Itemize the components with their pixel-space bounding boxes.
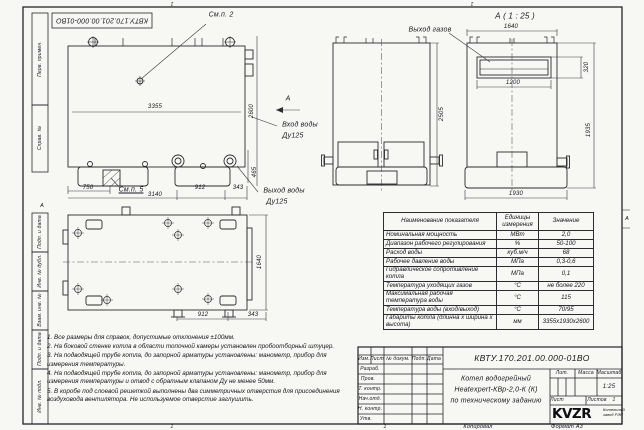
dim-2505: 2505 <box>439 107 445 121</box>
dim-912-plan: 912 <box>198 312 209 318</box>
tb-lit-label: Лит. <box>556 370 569 376</box>
table-row: Температура уходящих газов°Сне более 220 <box>384 282 594 291</box>
callout-smp5: См.п. 5 <box>119 187 144 194</box>
tb-name-line1: Котел водогрейный <box>461 376 531 383</box>
tb-row-tkontr: Т. контр. <box>358 386 381 392</box>
dim-912-side: 912 <box>195 185 206 191</box>
note-1: 1. Все размеры для справок, допустимые о… <box>47 334 351 343</box>
tb-row-nachotd: Нач.отд. <box>359 396 382 402</box>
table-row: Гидравлическое сопротивление котлаМПа0,1 <box>384 267 594 282</box>
margin-label-sprav-no: Справ. № <box>37 126 43 150</box>
table-row: Габариты котла (длинна х ширина х высота… <box>384 315 594 330</box>
margin-label-inv-dubl: Инв. № дубл. <box>37 254 43 287</box>
dim-750: 750 <box>83 185 94 191</box>
spec-header-name: Наименование показателя <box>384 213 497 231</box>
tb-row-utv: Утв. <box>360 416 372 422</box>
inlet-label-line2: Ду125 <box>282 133 303 140</box>
top-stamp-designation: КВТУ.170.201.00.000-01ВО <box>56 17 148 24</box>
front-view-dims <box>430 43 439 186</box>
table-row: Максимальная рабочая температура воды°С1… <box>384 291 594 306</box>
section-a-dims <box>449 29 596 200</box>
tb-format: Формат А3 <box>551 424 583 430</box>
dim-343-side: 343 <box>233 185 244 191</box>
section-a-title: А ( 1 : 25 ) <box>495 12 535 21</box>
table-row: Рабочее давление водыМПа0,3-0,6 <box>384 258 594 267</box>
note-2: 2. На боковой стенке котла в области топ… <box>47 343 351 352</box>
tb-col-izm: Изм. <box>358 356 369 362</box>
zone-number-bottom: 1 <box>171 424 174 430</box>
dim-320: 320 <box>584 62 590 73</box>
plan-view <box>63 207 253 317</box>
dim-1930: 1930 <box>509 191 523 197</box>
table-row: Температура воды (вход/выход)°С70/95 <box>384 306 594 315</box>
spec-header-row: Наименование показателя Единицы измерени… <box>384 213 594 231</box>
tb-col-data: Дата <box>427 356 441 362</box>
dim-343-plan: 343 <box>248 312 259 318</box>
dim-465: 465 <box>252 167 258 178</box>
outlet-label-line1: Выход воды <box>263 188 304 195</box>
margin-label-vzam-inv: Взам. инв. № <box>37 293 43 326</box>
tb-massa-label: Масса <box>578 370 594 376</box>
note-3: 3. На подводящей трубе котла, до запорно… <box>47 352 351 369</box>
section-arrow-a-label: А <box>286 96 291 103</box>
callout-smp2: См.п. 2 <box>209 12 234 19</box>
tb-col-podp: Подп. <box>412 356 426 362</box>
zone-letter-left: А <box>40 203 44 209</box>
zone-letter-right: А <box>625 216 629 222</box>
tb-row-prov: Пров. <box>361 376 375 382</box>
spec-header-units: Единицы измерения <box>497 213 539 231</box>
dim-2600: 2600 <box>249 104 255 118</box>
side-view <box>68 36 253 186</box>
kvzr-logo-caption-line2: завод РЭП <box>603 413 623 418</box>
technical-notes: 1. Все размеры для справок, допустимые о… <box>47 334 351 405</box>
tb-row-nkontr: Н. контр. <box>358 406 382 412</box>
kvzr-logo: KVZR <box>552 406 604 423</box>
dim-1640-section: 1640 <box>504 24 518 30</box>
tb-col-docnum: № докум. <box>386 356 410 362</box>
section-a-view <box>465 37 570 192</box>
table-row: Номинальная мощностьМВт2,0 <box>384 231 594 240</box>
note-4: 4. На подводящей трубе котла, до запорно… <box>47 370 351 387</box>
tb-listov-label: Листов <box>587 397 606 403</box>
dim-1935: 1935 <box>586 123 592 137</box>
note-5: 5. В коробе под слоевой решеткой выполне… <box>47 388 351 405</box>
kvzr-logo-caption: Котельный завод РЭП <box>603 408 623 417</box>
tb-masshtab-value: 1:25 <box>603 384 615 390</box>
inlet-label-line1: Вход воды <box>282 122 318 129</box>
outlet-label-line2: Ду125 <box>266 199 287 206</box>
table-row: Диапазон рабочего регулирования%50-100 <box>384 240 594 249</box>
table-row: Расход водыкуб.м/ч68 <box>384 249 594 258</box>
zone-number-top-2: 1 <box>471 0 474 6</box>
margin-label-podp-data-2: Подп. и дата <box>37 332 43 366</box>
spec-table: Наименование показателя Единицы измерени… <box>383 212 594 330</box>
drawing-sheet: { "frame": { "designation": "КВТУ.170.20… <box>0 0 644 430</box>
dim-1200: 1200 <box>506 80 520 86</box>
zone-number-top-1: 1 <box>171 0 174 6</box>
margin-label-perv-primen: Перв. примен. <box>37 41 43 77</box>
front-view <box>322 37 443 191</box>
tb-list-label: Лист <box>550 397 564 403</box>
margin-label-inv-podl: Инв. № подл. <box>37 379 43 412</box>
spec-header-value: Значение <box>539 213 594 231</box>
margin-label-podp-data-1: Подп. и дата <box>37 215 43 249</box>
dim-3140: 3140 <box>148 192 162 198</box>
tb-zone-bottom: 1 <box>383 424 386 430</box>
dim-1640-plan: 1640 <box>257 255 263 269</box>
tb-masshtab-label: Масштаб <box>597 370 622 376</box>
tb-listov-value: 1 <box>613 397 616 403</box>
tb-row-razrab: Разраб. <box>360 366 380 372</box>
tb-kopiroval: Копировал <box>463 424 492 430</box>
tb-col-list: Лист <box>370 356 384 362</box>
tb-designation: КВТУ.170.201.00.000-01ВО <box>474 353 590 363</box>
tb-name-line2: Heatexpert-КВр-2,0-К (К) <box>454 387 537 394</box>
gas-outlet-label: Выход газов <box>409 27 452 34</box>
dim-3355: 3355 <box>148 104 162 110</box>
tb-name-line3: по техническому заданию <box>450 398 541 405</box>
